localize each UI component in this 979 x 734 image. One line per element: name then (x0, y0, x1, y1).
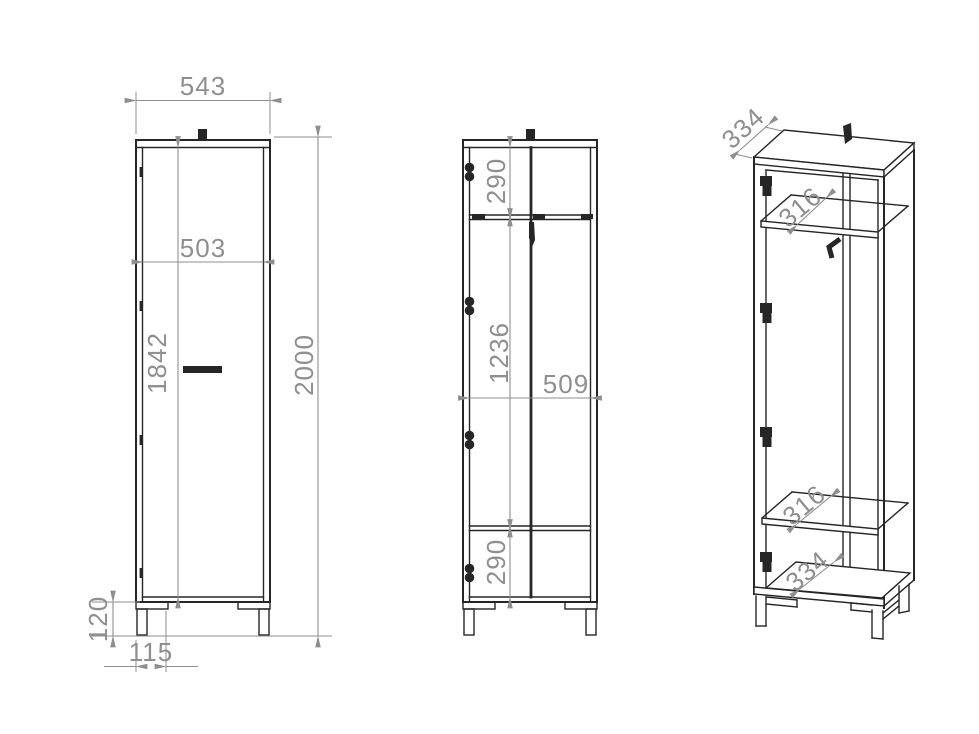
furniture-technical-drawing: 543 503 1842 2000 120 115 (0, 0, 979, 734)
hinge-icon (465, 172, 475, 182)
dim-top-compartment: 290 (481, 158, 511, 204)
dim-top-depth: 334 (716, 101, 771, 154)
hinge-icon (760, 176, 772, 196)
section-legs (463, 602, 597, 635)
hinge-icon (465, 297, 475, 307)
dim-front-total-height: 2000 (289, 334, 319, 396)
dim-section-inner-width: 509 (543, 369, 589, 399)
hinge-icon (465, 573, 475, 583)
hinge-icon (465, 564, 475, 574)
hinge-icon (140, 301, 143, 311)
dim-front-width: 543 (180, 71, 226, 101)
top-knob (198, 129, 207, 140)
perspective-body (754, 130, 914, 608)
door-handle (183, 366, 222, 373)
hinge-icon (140, 435, 143, 445)
dim-bottom-compartment: 290 (481, 539, 511, 585)
perspective-view: 334 316 316 334 (716, 101, 914, 639)
hinge-icon (140, 167, 143, 177)
hanging-rail-bracket (829, 239, 840, 258)
dim-front-inner-width: 503 (180, 233, 226, 263)
top-knob (526, 129, 535, 140)
hinge-icon (760, 427, 772, 447)
hinge-icon (140, 568, 143, 578)
dim-leg-height: 120 (83, 596, 113, 642)
hinge-icon (760, 552, 772, 572)
hinge-icon (465, 306, 475, 316)
hinge-icon (465, 431, 475, 441)
dim-middle-compartment: 1236 (484, 322, 514, 384)
dim-leg-inset: 115 (129, 637, 173, 667)
hinge-icon (760, 303, 772, 323)
section-view: 290 1236 509 290 (463, 129, 597, 635)
hinge-icon (465, 440, 475, 450)
front-legs (136, 602, 270, 635)
front-view: 543 503 1842 2000 120 115 (83, 71, 332, 672)
hinge-icon (465, 163, 475, 173)
dim-front-inner-height: 1842 (142, 332, 172, 394)
